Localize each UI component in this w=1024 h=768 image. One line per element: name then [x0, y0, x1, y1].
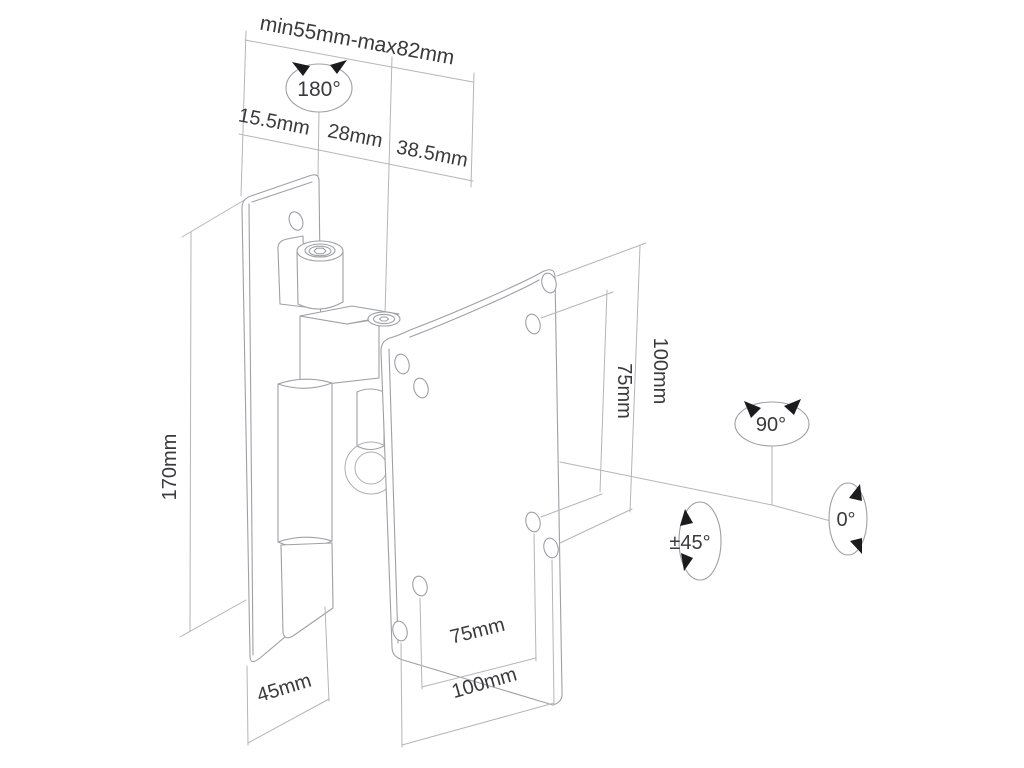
- hinge-arm-front: [300, 316, 379, 387]
- second-pivot-bolt: [374, 314, 395, 323]
- pivot-pin-bottom: [357, 446, 384, 450]
- dimension-line-vesa-100-horizontal: [402, 703, 554, 745]
- vesa-vertical-100-label: 100mm: [649, 338, 671, 405]
- pivot-bolt-rim: [309, 246, 331, 256]
- depth-seg2-label: 28mm: [326, 120, 385, 152]
- pivot-pin-top: [357, 389, 384, 392]
- hinge-assembly: [278, 236, 400, 638]
- hinge-lower-knuckle: [278, 379, 332, 548]
- pivot-boss-inner: [355, 452, 387, 484]
- bracket-height-label: 170mm: [159, 434, 181, 501]
- height-dimension: [180, 199, 246, 637]
- extension-line: [471, 73, 474, 187]
- side-rotation-label: ±45°: [669, 532, 710, 554]
- rotation-axes-indicator: [560, 399, 867, 580]
- rotation-zero-label: 0°: [836, 509, 855, 531]
- depth-seg3-label: 38.5mm: [395, 136, 470, 171]
- extension-line: [325, 607, 329, 701]
- vesa-vertical-75-label: 75mm: [613, 363, 635, 419]
- wall-mount-dimension-diagram: min55mm-max82mm 180° 15.5mm 28mm 38.5mm …: [0, 0, 1024, 768]
- swivel-180-label: 180°: [297, 78, 340, 101]
- dimension-line-vesa-75-vertical: [600, 290, 607, 492]
- dimension-line-height: [190, 232, 191, 631]
- extension-line: [560, 509, 632, 543]
- diagram-canvas: min55mm-max82mm 180° 15.5mm 28mm 38.5mm …: [0, 0, 1024, 768]
- extension-line: [182, 199, 246, 237]
- extension-line: [247, 666, 248, 745]
- hinge-bottom-lug: [281, 543, 333, 638]
- depth-seg1-label: 15.5mm: [237, 104, 312, 139]
- extension-line: [557, 243, 646, 276]
- extension-line: [385, 57, 392, 314]
- tilt-rotation-label: 90°: [756, 414, 786, 436]
- plate-width-label: 45mm: [254, 670, 314, 707]
- pivot-pin-sides: [357, 392, 384, 446]
